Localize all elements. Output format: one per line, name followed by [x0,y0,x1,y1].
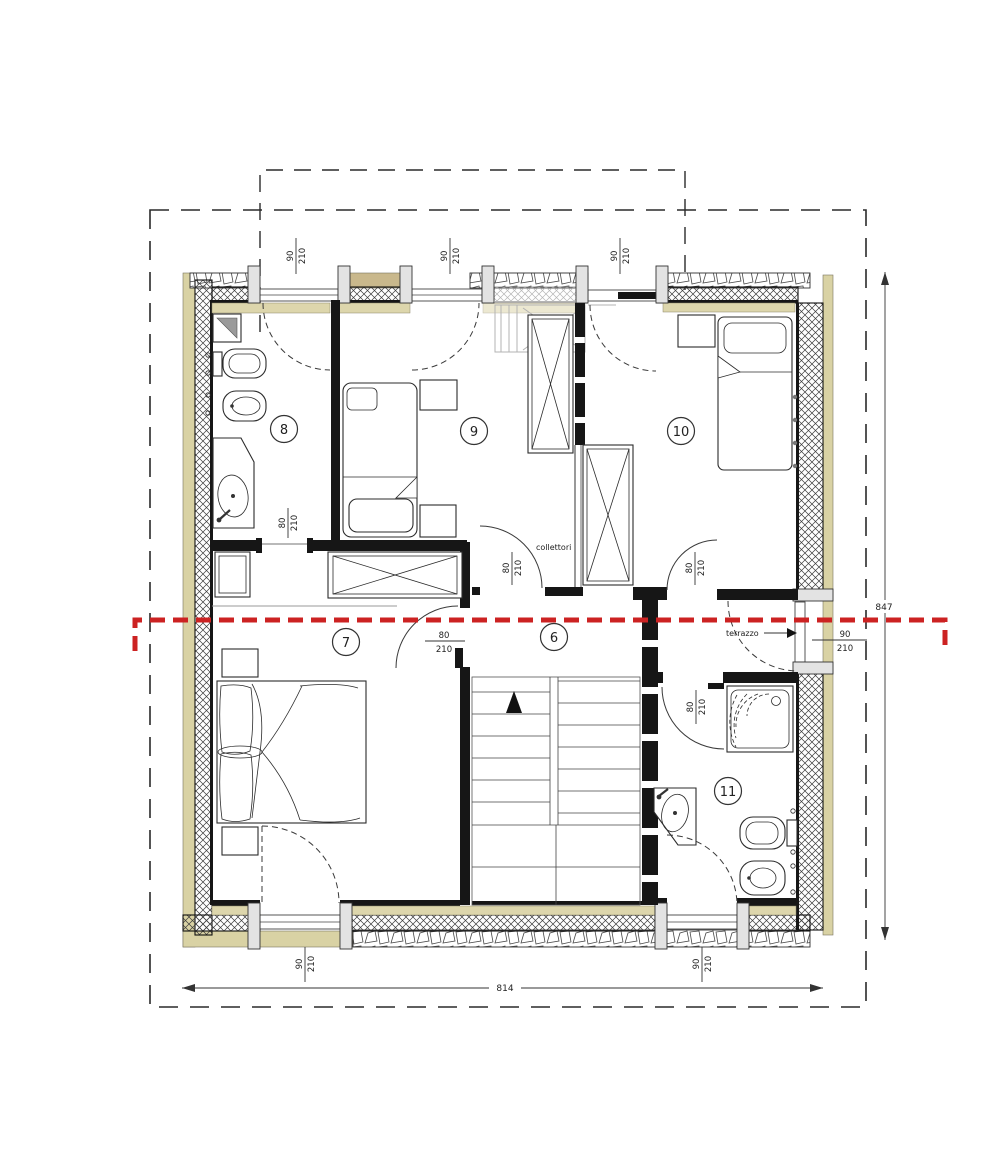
svg-text:210: 210 [307,956,317,972]
stool-room9 [420,505,456,537]
collettori-closet [583,445,633,585]
wardrobe-room7 [328,552,462,598]
wardrobes [215,315,633,598]
terrace-door-leaf [795,602,805,662]
right-wall-lower [798,673,823,930]
svg-text:210: 210 [698,699,708,715]
overall-height-label: 847 [875,603,892,613]
bidet-room8 [206,391,266,421]
shower-room8 [213,314,241,342]
staircase [472,677,640,905]
ghost-wall-segment [494,287,576,303]
shaft-cabinet [215,552,250,597]
door-label-top-3: 90 210 [610,238,632,274]
toilet-room8 [206,349,266,378]
door-label-bath8: 80 210 [278,508,300,538]
right-wall-upper [798,303,823,600]
left-wall [195,280,212,935]
collettori-label: collettori [536,543,571,552]
stair-up-arrow-icon [506,691,522,713]
room-number-7: 7 [342,636,350,651]
room-bubble-11: 11 [715,778,742,805]
room-number-11: 11 [720,785,737,800]
terrazzo-label: terrazzo [726,629,759,638]
dimension-height: 847 [869,272,899,940]
sink-room8 [213,438,254,528]
nightstand-room9 [420,380,457,410]
room-number-6: 6 [550,631,558,646]
room-number-8: 8 [280,423,288,438]
svg-text:80: 80 [439,631,450,641]
bidet-room11 [740,861,795,895]
door-label-bottom-1: 90 210 [295,947,317,982]
floor-plan-page: 847 814 [0,0,1008,1168]
door-label-room10: 80 210 [685,552,707,585]
nightstand-room7-top [222,649,258,677]
floor-plan-drawing: 847 814 [0,0,1008,1168]
door-label-top-2: 90 210 [440,238,462,274]
room-number-9: 9 [470,425,478,440]
door-label-top-1: 90 210 [286,238,308,274]
svg-text:210: 210 [622,248,632,264]
nightstand-room7-bottom [222,827,258,855]
wall-room8-room9 [331,300,340,545]
svg-text:90: 90 [440,251,450,262]
sink-room11 [654,788,696,845]
door-label-room9: 80 210 [502,552,524,585]
nightstand-room10 [678,315,715,347]
svg-text:210: 210 [298,248,308,264]
dimension-width: 814 [182,981,823,994]
svg-text:210: 210 [837,644,853,654]
room-bubble-6: 6 [541,624,568,651]
door-label-bottom-2: 90 210 [692,947,714,982]
svg-text:210: 210 [290,515,300,531]
room-number-10: 10 [673,425,690,440]
svg-text:90: 90 [840,630,851,640]
svg-text:90: 90 [286,251,296,262]
entry-door-leaf [618,292,656,299]
door-label-terrace: 90 210 [812,630,867,654]
room-bubble-8: 8 [271,416,298,443]
room-bubble-7: 7 [333,629,360,656]
bed-room10 [718,317,792,470]
svg-text:80: 80 [278,518,288,529]
svg-text:210: 210 [452,248,462,264]
door-label-bath11: 80 210 [686,690,708,724]
svg-text:90: 90 [610,251,620,262]
room-bubble-10: 10 [668,418,695,445]
wardrobe-room9 [528,315,573,453]
svg-text:210: 210 [704,956,714,972]
svg-text:80: 80 [685,563,695,574]
svg-text:90: 90 [295,959,305,970]
bed-room7 [217,681,366,823]
svg-text:210: 210 [697,560,707,576]
overall-width-label: 814 [496,984,513,994]
svg-text:90: 90 [692,959,702,970]
svg-text:80: 80 [502,563,512,574]
bathroom8-fixtures [206,314,266,528]
shower-room11 [727,686,793,752]
room-bubble-9: 9 [461,418,488,445]
svg-text:210: 210 [436,645,452,655]
svg-text:210: 210 [514,560,524,576]
svg-text:80: 80 [686,702,696,713]
toilet-room11 [740,809,797,854]
top-wall-band [344,273,408,288]
